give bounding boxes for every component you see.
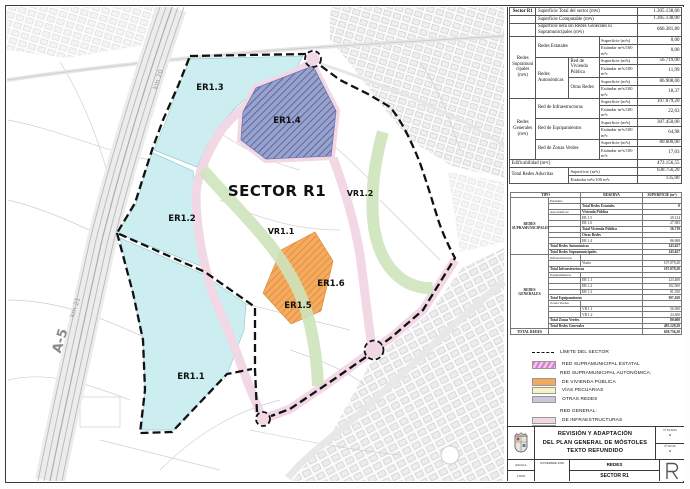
table1-value: 638.756,20	[638, 167, 682, 175]
legend-label: DE VIVIENDA PÚBLICA	[562, 380, 616, 385]
plan-sheet-name: SECTOR R1	[570, 471, 659, 481]
legend-item-pecuarias: VÍAS PECUARIAS	[532, 386, 682, 395]
title-line-3: TEXTO REFUNDIDO	[567, 447, 623, 456]
table1-value: 666.381,80	[638, 23, 682, 36]
plan-sheet: SECTOR R1 ER1.3 ER1.4 ER1.2 ER1.1 ER1.5 …	[0, 0, 690, 489]
legend-label: OTRAS REDES	[562, 397, 597, 402]
hoja-value: -	[669, 448, 671, 455]
legend-item-infraestructuras: DE INFRAESTRUCTURAS	[532, 416, 682, 425]
table1-metric: Estándar m²s/100 m²c	[599, 65, 638, 78]
date-cell: NOVIEMBRE 2008	[535, 460, 570, 481]
empty-swatch	[532, 409, 554, 415]
table1-group: Redes Supramunicipales (m²s)	[510, 37, 536, 98]
table1-value: 22,63	[638, 106, 682, 119]
table1-value: 473.156,55	[638, 160, 682, 168]
table1-value: 0,00	[638, 37, 682, 45]
legend-label: RED SUPRAMUNICIPAL AUTONÓMICA:	[560, 371, 651, 376]
legend-label: RED SUPRAMUNICIPAL ESTATAL	[562, 362, 640, 367]
table1-metric: Estándar m²s/100 m²c	[599, 126, 638, 139]
table1-row-label: Superficie Computable (m²s)	[536, 15, 638, 23]
pink-swatch	[532, 417, 556, 425]
table1-value: 80.600,00	[638, 139, 682, 147]
table1-metric: Superficie (m²s)	[599, 57, 638, 65]
table1-value: 1.305.138,00	[638, 15, 682, 23]
title-block: REVISIÓN Y ADAPTACIÓN DEL PLAN GENERAL D…	[508, 426, 684, 481]
table1-value: 18,37	[638, 85, 682, 98]
legend-label: DE INFRAESTRUCTURAS	[562, 418, 622, 423]
label-er1-5: ER1.5	[284, 301, 311, 311]
scale-value: 1:5000	[508, 471, 534, 481]
table1-group: Redes Generales (m²s)	[510, 98, 536, 159]
table1-metric: Estándar m²s/100 m²c	[569, 175, 638, 183]
coat-of-arms	[508, 427, 535, 459]
table1-spacer	[510, 15, 536, 23]
table2-cell: REDES GENERALES	[511, 255, 549, 329]
table1-row-label: Superficie Total del sector (m²s)	[536, 8, 638, 16]
table-reserves-detail: TIPO RESERVA SUPERFICIE (m²) REDES SUPRA…	[510, 192, 682, 336]
hatch-swatch	[532, 361, 556, 369]
table1-spacer	[510, 23, 536, 36]
legend-label: LÍMITE DEL SECTOR	[560, 350, 609, 355]
table1-row-label: Superficie neta sin Redes Generales ni S…	[536, 23, 638, 36]
legend-label: VÍAS PECUARIAS	[562, 388, 603, 393]
table1-value: 11,99	[638, 65, 682, 78]
title-line-1: REVISIÓN Y ADAPTACIÓN	[558, 430, 632, 439]
table1-row-label: Red de Equipamientos	[536, 119, 599, 139]
table1-row-label: Red de Vivienda Pública	[569, 57, 600, 77]
plan-subject: REDES	[570, 460, 659, 471]
table1-metric: Superficie (m²s)	[569, 167, 638, 175]
table1-metric: Estándar m²s/100 m²c	[599, 85, 638, 98]
legend-item-autonomica-header: RED SUPRAMUNICIPAL AUTONÓMICA:	[532, 369, 682, 378]
scale-label: ESCALA	[508, 460, 534, 471]
data-panel: Sector R1 Superficie Total del sector (m…	[507, 7, 684, 481]
label-vr1-1: VR1.1	[268, 227, 295, 236]
table2-cell: TOTAL REDES	[511, 329, 549, 335]
table1-value: 17,03	[638, 147, 682, 160]
label-er1-6: ER1.6	[317, 279, 344, 289]
table1-value: 56.719,00	[638, 57, 682, 65]
dashed-line-swatch	[532, 352, 554, 353]
table1-value: 0,00	[638, 44, 682, 57]
legend-item-general-header: RED GENERAL:	[532, 408, 682, 417]
table1-metric: Superficie (m²s)	[599, 37, 638, 45]
scale-cell: ESCALA 1:5000	[508, 460, 535, 481]
title-line-2: DEL PLAN GENERAL DE MÓSTOLES	[543, 439, 647, 448]
table1-metric: Superficie (m²s)	[599, 98, 638, 106]
legend-item-limite: LÍMITE DEL SECTOR	[532, 348, 682, 357]
table1-value: 107.079,20	[638, 98, 682, 106]
table1-row-label: Total Redes Adscritas	[510, 167, 569, 183]
table1-metric: Estándar m²s/100 m²c	[599, 44, 638, 57]
label-vr1-2: VR1.2	[347, 189, 374, 198]
table1-row-label: Red de Infraestructuras	[536, 98, 599, 118]
legend-label: RED GENERAL:	[560, 409, 597, 414]
table1-row-label: Edificabilidad (m²c)	[510, 160, 638, 168]
roundabout-southeast	[441, 446, 459, 464]
table2-cell: 638.756,20	[643, 329, 682, 335]
node-roundabout	[366, 342, 382, 358]
table2-cell	[549, 329, 643, 335]
label-sector-r1: SECTOR R1	[228, 182, 326, 200]
table1-metric: Superficie (m²s)	[599, 78, 638, 86]
table1-value: 86.908,00	[638, 78, 682, 86]
yellow-swatch	[532, 387, 556, 395]
table2-cell: REDES SUPRAMUNICIPALES	[511, 198, 549, 255]
table1-row-label: Otras Redes	[569, 78, 600, 98]
table-sector-summary: Sector R1 Superficie Total del sector (m…	[509, 7, 682, 184]
table1-metric: Superficie (m²s)	[599, 119, 638, 127]
label-er1-4: ER1.4	[273, 116, 300, 126]
firm-logo	[660, 460, 684, 481]
table1-row-label: Red de Zonas Verdes	[536, 139, 599, 159]
table1-metric: Estándar m²s/100 m²c	[599, 147, 638, 160]
plano-value: -	[669, 432, 671, 439]
label-er1-2: ER1.2	[168, 214, 195, 224]
table1-value: 1.305.138,00	[638, 8, 682, 16]
plan-map: SECTOR R1 ER1.3 ER1.4 ER1.2 ER1.1 ER1.5 …	[7, 7, 506, 481]
table1-value: 135,00	[638, 175, 682, 183]
table1-value: 64,98	[638, 126, 682, 139]
empty-swatch	[532, 371, 554, 377]
orange-swatch	[532, 378, 556, 386]
table1-metric: Superficie (m²s)	[599, 139, 638, 147]
table1-row-label: Redes Autonómicas	[536, 57, 569, 98]
legend-item-estatal: RED SUPRAMUNICIPAL ESTATAL	[532, 361, 682, 370]
label-er1-1: ER1.1	[177, 372, 204, 382]
table1-title: Sector R1	[510, 8, 536, 16]
table1-metric: Estándar m²s/100 m²c	[599, 106, 638, 119]
table2-header-superficie: SUPERFICIE (m²)	[643, 192, 682, 198]
table1-value: 307.450,00	[638, 119, 682, 127]
node-south	[257, 413, 269, 425]
legend-item-otras: OTRAS REDES	[532, 395, 682, 404]
label-er1-3: ER1.3	[196, 83, 223, 93]
table1-row-label: Redes Estatales	[536, 37, 599, 57]
legend-item-vivienda: DE VIVIENDA PÚBLICA	[532, 378, 682, 387]
gray-swatch	[532, 396, 556, 404]
